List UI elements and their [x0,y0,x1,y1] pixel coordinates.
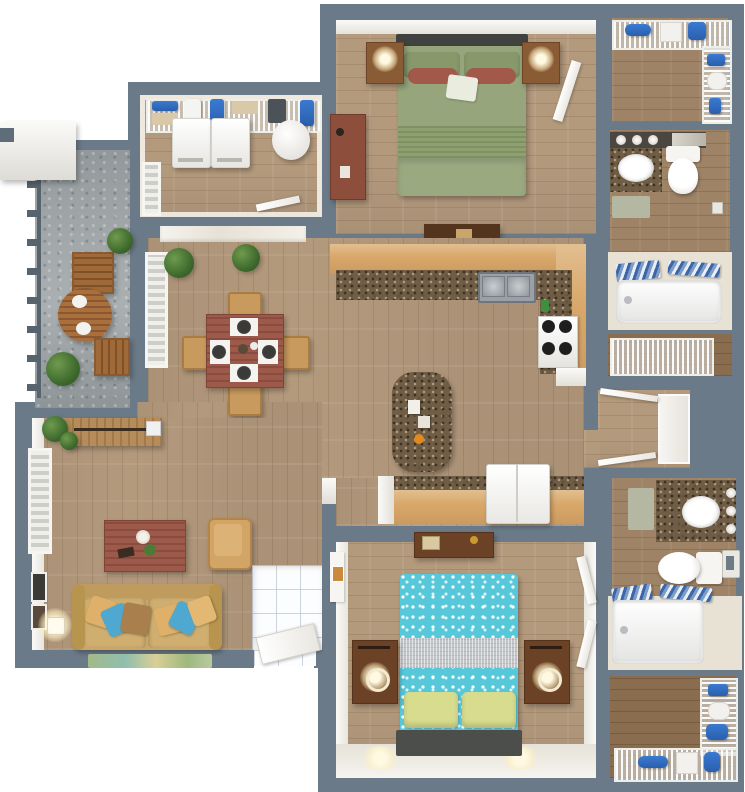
closet1-basket [660,22,682,42]
living-window-shutters [28,448,52,554]
laundry-louver-door [142,162,161,216]
closet1-item [707,54,725,66]
kitchen-sink-basin [482,276,505,297]
patio-overhang-edge [0,128,14,142]
bed1-duvet-foot [398,158,526,196]
bed2-nightstand-top-slot [530,646,562,649]
bath1-shelf [672,133,706,146]
dining-plate [212,345,226,359]
refrigerator [486,464,550,524]
laundry-basket [232,101,258,114]
living-rug [88,654,212,668]
stove-burner [559,320,572,333]
hall-closet-doors [658,394,690,464]
washer-panel [178,158,203,162]
dining-plate [237,366,251,380]
closet2-basket [708,702,730,720]
bath2-tub-drain [620,626,628,634]
floor-lamp-shade [47,617,65,635]
dining-centerpiece [250,342,258,350]
bath1-tub [616,280,722,324]
floor-plan [0,0,745,792]
closet2-item [708,684,728,696]
bedroom2-wall-glow [360,746,400,770]
bath2-mat [628,488,654,530]
island-fruit [414,434,424,444]
bedroom1-dresser-decor [340,166,350,178]
dining-plate [237,320,251,334]
bedroom2-dresser-clock [422,536,440,550]
sofa-arm-left [72,584,85,650]
patio-bush [46,352,80,386]
bath1-tub-drain [624,296,632,304]
bed2-pillow [462,692,516,728]
laundry-hamper [272,120,310,160]
bath2-light [726,488,736,498]
kitchen-lower-endcap [378,476,394,524]
laundry-towel-blue [300,100,314,126]
stove-burner [542,342,555,355]
closet2-bin [706,724,728,740]
bath1-toilet-bowl [668,158,698,194]
living-plant [60,432,78,450]
bed1-duvet-band [398,126,526,158]
bath1-mat [612,196,650,218]
bath1-light [648,135,658,145]
bedroom2-art [332,566,344,582]
bed2-headboard [396,730,522,756]
bath2-light [726,524,736,534]
dining-window-sill [160,226,306,242]
island-item [418,416,430,428]
closet1-towel [625,24,651,36]
dining-plant [232,244,260,272]
patio-stool [94,338,130,376]
living-console-slot [74,428,152,431]
bedroom1-dresser-decor [336,128,344,136]
room-kitchen [0,0,1,1]
bath2-sink [682,496,720,528]
wall-kitchen-right [584,222,598,430]
sofa-pillow-brown [120,602,153,636]
kitchen-pillar [320,478,336,504]
kitchen-sink-basin [507,276,530,297]
dryer-panel [217,158,242,162]
bath2-light [726,506,736,516]
bath2-toilet-bowl [658,552,700,584]
bed1-lamp-left [372,46,398,72]
linen-closet-shelf [610,338,714,376]
armchair-seat [214,524,242,556]
bath1-sink [618,154,654,182]
bed2-pillow [404,692,458,728]
bedroom2-dresser-item [470,536,478,544]
bed2-nightstand-top-slot [358,646,390,649]
closet2-jug [704,752,720,772]
closet2-towel [638,756,668,768]
bath1-light [632,135,642,145]
patio-railing-rail [37,150,41,398]
refrigerator-seam [516,464,518,522]
stove-burner [559,342,572,355]
bath1-light [616,135,626,145]
laundry-towel-blue [152,101,178,111]
kitchen-bottle [541,300,549,312]
bedroom1-dresser [330,114,366,200]
bed2-lamp-right-ring [538,668,562,692]
kitchen-granite-top [336,270,572,300]
coffee-table-flowers [136,530,150,544]
island-item [408,400,420,414]
closet1-item [709,98,721,114]
patio-bush [107,228,133,254]
patio-plate [76,322,91,335]
closet1-basket [707,72,727,90]
bed1-lamp-right [528,46,554,72]
coffee-table-greens [144,544,156,556]
stove-burner [542,320,555,333]
living-console-item [146,421,161,436]
bedroom1-top-wall-face [336,20,596,34]
laundry-towel-gray [268,99,286,123]
bed2-silver-band [400,638,518,668]
dining-plant [164,248,194,278]
bath2-towel-ring-accent [726,556,734,570]
bath1-door-handle [712,202,723,214]
closet2-basket [676,752,698,774]
bed2-lamp-left-ring [366,668,390,692]
closet1-bin [688,22,706,40]
dining-plate [262,345,276,359]
patio-plate [72,295,87,308]
living-wall-art [31,572,47,602]
kitchen-counter-endcap [556,368,586,386]
dining-centerpiece [238,344,248,354]
bed1-small-pillow [445,74,478,102]
